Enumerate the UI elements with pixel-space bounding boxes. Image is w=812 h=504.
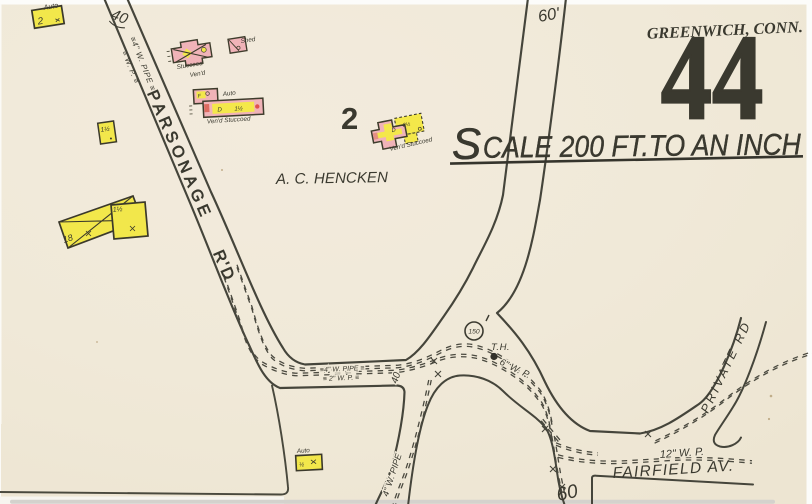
svg-text:1½: 1½ [234,105,243,112]
svg-text:60': 60' [537,4,562,26]
svg-text:1½: 1½ [100,125,111,134]
svg-text:S: S [452,120,482,169]
svg-text:½: ½ [299,461,304,468]
svg-text:Auto: Auto [296,447,311,455]
svg-text:T.H.: T.H. [491,342,510,353]
svg-text:2: 2 [341,101,358,136]
svg-text:1½: 1½ [112,205,123,214]
svg-text:A. C. HENCKEN: A. C. HENCKEN [275,169,390,188]
svg-text:150: 150 [468,329,480,336]
svg-text:44: 44 [661,11,764,145]
